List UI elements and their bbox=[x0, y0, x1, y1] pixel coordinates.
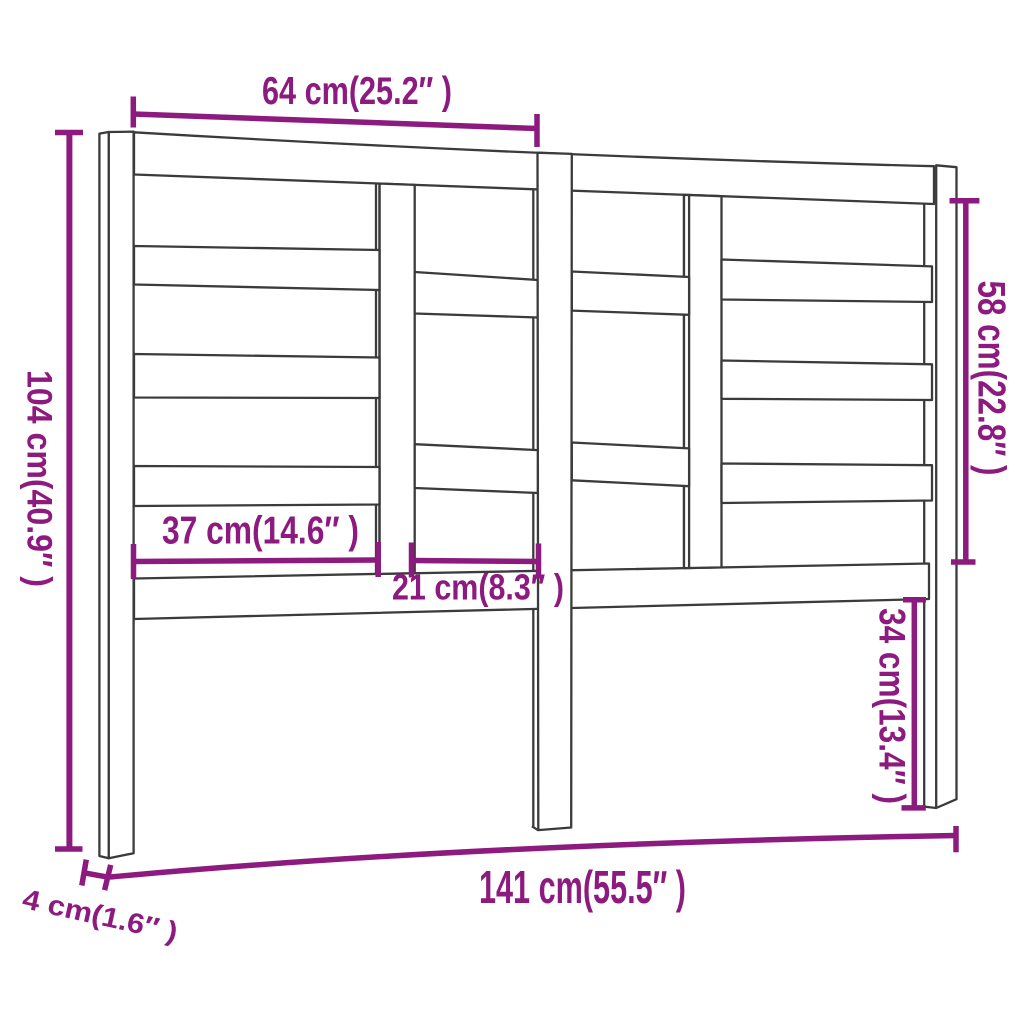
svg-text:21 cm(8.3″ ): 21 cm(8.3″ ) bbox=[392, 567, 564, 608]
svg-text:104 cm(40.9″ ): 104 cm(40.9″ ) bbox=[20, 370, 60, 587]
svg-text:58 cm(22.8″ ): 58 cm(22.8″ ) bbox=[970, 281, 1013, 476]
svg-text:34 cm(13.4″ ): 34 cm(13.4″ ) bbox=[872, 608, 913, 804]
svg-text:141 cm(55.5″ ): 141 cm(55.5″ ) bbox=[479, 861, 686, 913]
svg-text:37 cm(14.6″ ): 37 cm(14.6″ ) bbox=[162, 510, 359, 553]
svg-text:64 cm(25.2″ ): 64 cm(25.2″ ) bbox=[262, 70, 452, 113]
